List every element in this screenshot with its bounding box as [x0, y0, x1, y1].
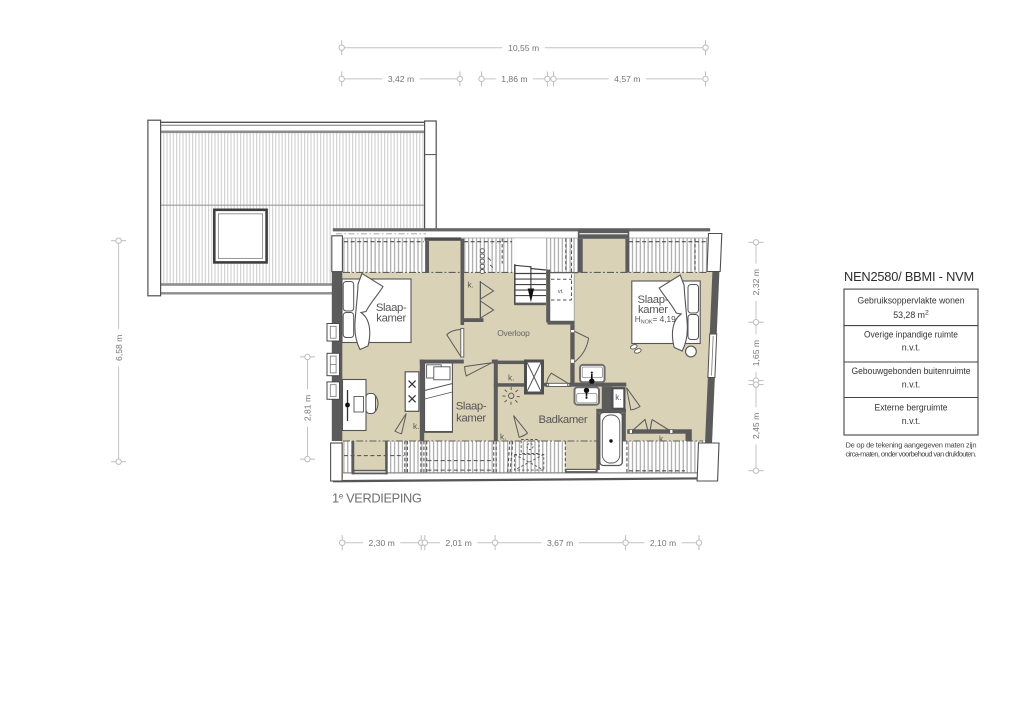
svg-text:k.: k. [468, 281, 474, 290]
svg-text:kamer: kamer [376, 313, 406, 325]
svg-text:2,32 m: 2,32 m [751, 269, 761, 295]
svg-text:n.v.t.: n.v.t. [902, 343, 920, 353]
svg-text:4,57 m: 4,57 m [614, 74, 640, 84]
svg-text:Slaap-: Slaap- [456, 401, 487, 413]
svg-text:1,65 m: 1,65 m [751, 340, 761, 366]
svg-text:NEN2580/ BBMI - NVM: NEN2580/ BBMI - NVM [844, 269, 974, 284]
svg-text:n.v.t.: n.v.t. [902, 416, 920, 426]
svg-text:3,42 m: 3,42 m [388, 74, 414, 84]
svg-text:k.: k. [500, 433, 506, 442]
svg-text:2,10 m: 2,10 m [650, 538, 676, 548]
svg-text:2,81 m: 2,81 m [303, 395, 313, 421]
svg-text:k.: k. [659, 435, 665, 444]
svg-text:circa-maten, onder voorbehoud: circa-maten, onder voorbehoud van drukfo… [846, 450, 977, 459]
svg-text:k.: k. [508, 374, 514, 383]
svg-text:Overige inpandige ruimte: Overige inpandige ruimte [864, 330, 958, 340]
svg-text:k.: k. [413, 422, 419, 431]
svg-text:Externe bergruimte: Externe bergruimte [875, 403, 948, 413]
svg-text:2,30 m: 2,30 m [369, 538, 395, 548]
svg-text:k.: k. [615, 393, 621, 402]
svg-text:n.v.t.: n.v.t. [902, 380, 920, 390]
svg-text:vt.: vt. [558, 289, 564, 295]
svg-text:6,58 m: 6,58 m [114, 335, 124, 361]
svg-text:Gebruiksoppervlakte wonen: Gebruiksoppervlakte wonen [858, 296, 965, 306]
svg-text:De op de tekening aangegeven m: De op de tekening aangegeven maten zijn [846, 441, 977, 450]
svg-text:10,55 m: 10,55 m [508, 43, 539, 53]
svg-text:53,28 m2: 53,28 m2 [893, 310, 929, 321]
svg-text:Overloop: Overloop [497, 328, 530, 338]
svg-text:3,67 m: 3,67 m [547, 538, 573, 548]
svg-text:1,86 m: 1,86 m [501, 74, 527, 84]
svg-text:kamer: kamer [456, 413, 486, 425]
svg-text:1e VERDIEPING: 1e VERDIEPING [332, 491, 422, 506]
svg-text:Gebouwgebonden buitenruimte: Gebouwgebonden buitenruimte [852, 366, 971, 376]
svg-text:Badkamer: Badkamer [539, 414, 588, 426]
svg-text:2,01 m: 2,01 m [445, 538, 471, 548]
svg-text:2,45 m: 2,45 m [751, 413, 761, 439]
